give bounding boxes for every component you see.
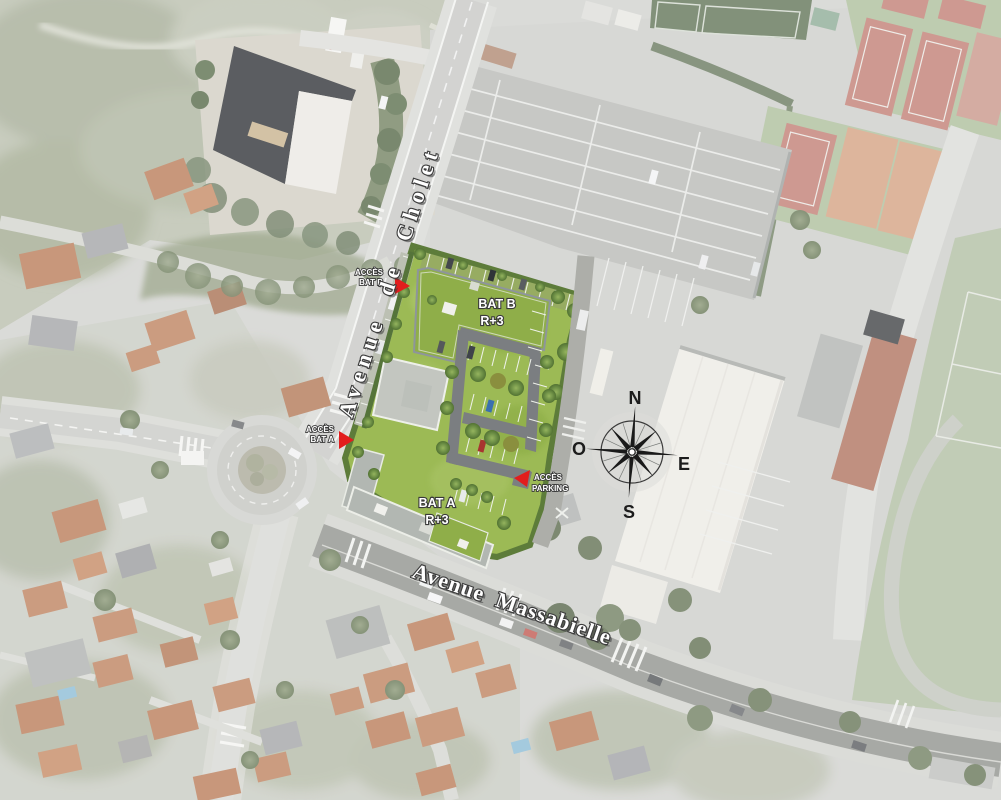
svg-text:O: O <box>572 439 586 459</box>
svg-text:E: E <box>678 454 690 474</box>
svg-text:BAT A: BAT A <box>419 496 456 510</box>
svg-text:R+3: R+3 <box>425 513 448 527</box>
svg-text:BAT B: BAT B <box>478 297 515 311</box>
svg-text:N: N <box>629 388 642 408</box>
svg-text:BAT A: BAT A <box>310 435 334 444</box>
svg-text:PARKING: PARKING <box>532 484 568 493</box>
svg-text:ACCÈS: ACCÈS <box>306 425 335 434</box>
svg-text:S: S <box>623 502 635 522</box>
svg-text:R+3: R+3 <box>480 314 503 328</box>
svg-text:ACCÈS: ACCÈS <box>534 473 563 482</box>
